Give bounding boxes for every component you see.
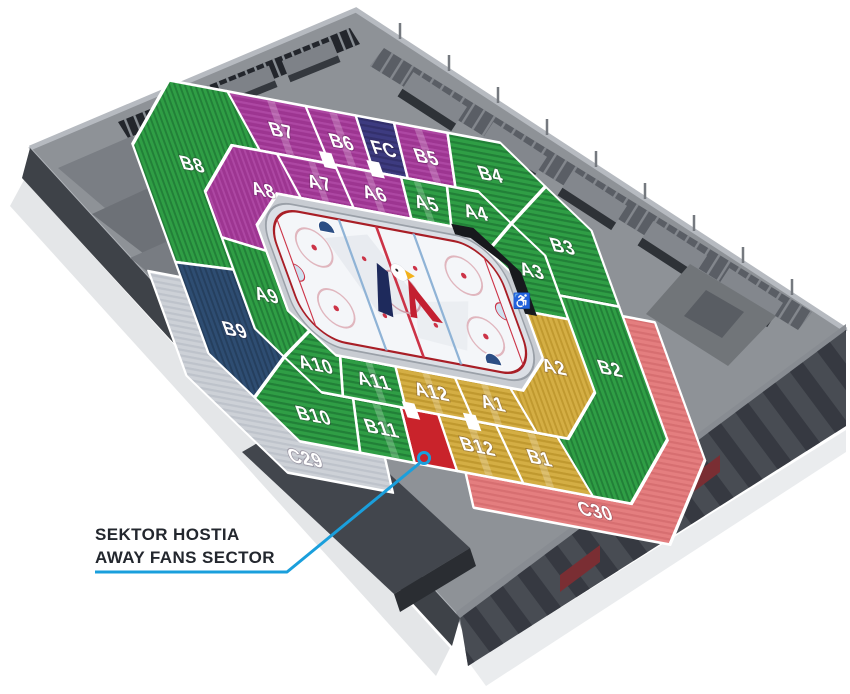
wheelchair-icon: ♿ bbox=[513, 292, 532, 310]
arena-seating-map: B7 B6 FC B5 B4 B3 B2 B1 B12 B11 B10 B9 B… bbox=[0, 0, 850, 694]
callout-line1: SEKTOR HOSTIA bbox=[95, 525, 240, 544]
callout-line2: AWAY FANS SECTOR bbox=[95, 548, 275, 567]
arena-map-canvas: B7 B6 FC B5 B4 B3 B2 B1 B12 B11 B10 B9 B… bbox=[0, 0, 850, 694]
